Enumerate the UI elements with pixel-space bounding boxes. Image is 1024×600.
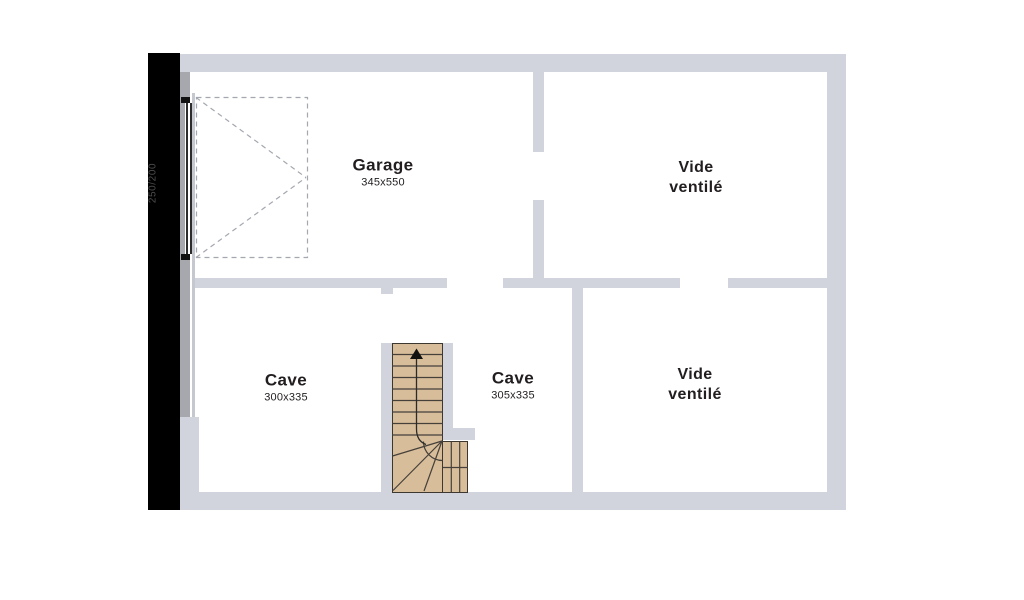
- room-name-line1: Vide: [668, 365, 722, 385]
- wall-cave-vide-divider: [572, 288, 583, 493]
- wall-garage-divider-upper: [533, 72, 544, 152]
- wall-mid-left: [193, 278, 447, 288]
- room-label-garage: Garage 345x550: [353, 156, 414, 189]
- room-label-vide-ventile-bottom: Vide ventilé: [668, 365, 722, 405]
- wall-bottom: [180, 492, 846, 510]
- wall-left-upper: [180, 72, 190, 98]
- wall-left-base: [180, 417, 199, 493]
- garage-door-dimension-label: 250/200: [148, 163, 159, 203]
- wall-left-inner-line: [192, 93, 195, 417]
- wall-stair-stub: [381, 288, 393, 294]
- garage-door-cap-bottom: [181, 254, 190, 260]
- wall-stair-left: [381, 343, 392, 493]
- room-name: Cave: [491, 369, 535, 388]
- garage-door-leaf-outer: [186, 103, 188, 254]
- wall-top: [180, 54, 846, 72]
- wall-mid-center: [503, 278, 680, 288]
- wall-right: [827, 54, 846, 510]
- exterior-black-band: [148, 53, 180, 510]
- room-dims: 300x335: [264, 392, 308, 404]
- wall-left-door-jamb: [180, 98, 185, 260]
- garage-door-leaf-inner: [190, 103, 192, 254]
- wall-garage-divider-lower: [533, 200, 544, 278]
- wall-stair-foot: [443, 428, 475, 440]
- room-label-cave-left: Cave 300x335: [264, 371, 308, 404]
- room-label-cave-right: Cave 305x335: [491, 369, 535, 402]
- room-name: Cave: [264, 371, 308, 390]
- staircase-lower-flight: [443, 441, 468, 493]
- room-name-line2: ventilé: [668, 385, 722, 405]
- room-name-line1: Vide: [669, 158, 723, 178]
- room-dims: 345x550: [353, 177, 414, 189]
- wall-stair-right: [443, 343, 453, 428]
- room-name-line2: ventilé: [669, 178, 723, 198]
- room-name: Garage: [353, 156, 414, 175]
- staircase-main-run: [392, 343, 443, 493]
- garage-door-swing: [196, 98, 308, 258]
- floor-plan: 250/200: [0, 0, 1024, 600]
- room-label-vide-ventile-top: Vide ventilé: [669, 158, 723, 198]
- wall-mid-right: [728, 278, 827, 288]
- room-dims: 305x335: [491, 390, 535, 402]
- wall-left-lower: [180, 260, 190, 417]
